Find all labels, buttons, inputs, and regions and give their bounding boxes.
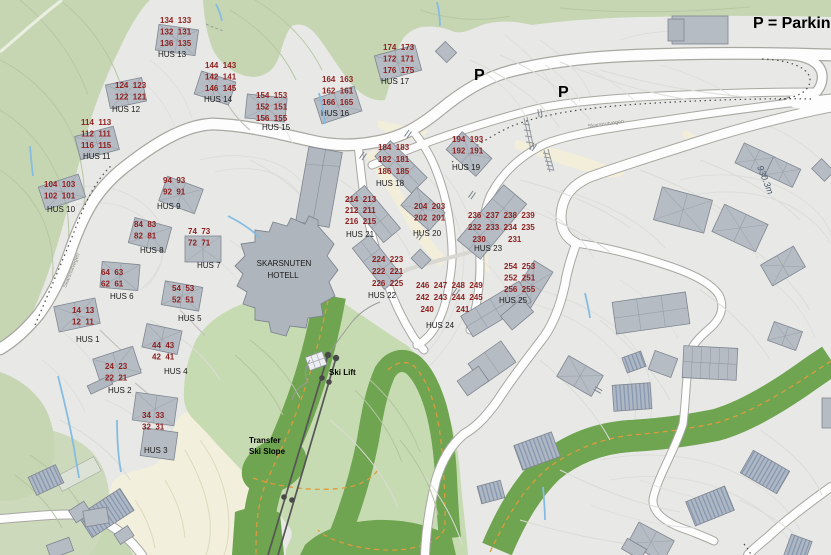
svg-text:HUS 7: HUS 7 <box>197 261 221 270</box>
svg-text:104 103: 104 103 <box>44 180 76 189</box>
svg-text:246 247 248 249: 246 247 248 249 <box>416 281 483 290</box>
svg-text:22 21: 22 21 <box>105 374 128 383</box>
svg-text:62 61: 62 61 <box>101 280 124 289</box>
svg-text:84 83: 84 83 <box>134 220 157 229</box>
svg-text:HUS 21: HUS 21 <box>346 230 375 239</box>
svg-text:HUS 9: HUS 9 <box>157 202 181 211</box>
svg-text:HUS 2: HUS 2 <box>108 386 132 395</box>
svg-text:HUS 5: HUS 5 <box>178 314 202 323</box>
svg-text:64 63: 64 63 <box>101 268 124 277</box>
svg-text:HUS 13: HUS 13 <box>158 50 187 59</box>
svg-text:12 11: 12 11 <box>72 318 94 327</box>
svg-text:112 111: 112 111 <box>81 130 111 139</box>
svg-text:252 251: 252 251 <box>504 274 536 283</box>
svg-text:172 171: 172 171 <box>383 55 415 64</box>
svg-text:156 155: 156 155 <box>256 114 288 123</box>
svg-text:52 51: 52 51 <box>172 296 195 305</box>
svg-text:102 101: 102 101 <box>44 192 76 201</box>
svg-text:116 115: 116 115 <box>81 141 112 150</box>
svg-text:204 203: 204 203 <box>414 202 446 211</box>
svg-text:232 233 234 235: 232 233 234 235 <box>468 223 535 232</box>
svg-text:SKARSNUTEN: SKARSNUTEN <box>257 259 312 268</box>
svg-text:202 201: 202 201 <box>414 214 446 223</box>
svg-text:HUS 22: HUS 22 <box>368 291 397 300</box>
svg-text:HUS 24: HUS 24 <box>426 321 455 330</box>
svg-text:256 255: 256 255 <box>504 285 536 294</box>
svg-text:146 145: 146 145 <box>205 84 237 93</box>
svg-text:74 73: 74 73 <box>188 227 211 236</box>
svg-text:HUS 16: HUS 16 <box>321 109 350 118</box>
svg-text:14 13: 14 13 <box>72 306 95 315</box>
svg-text:214 213: 214 213 <box>345 195 377 204</box>
svg-text:92 91: 92 91 <box>163 188 186 197</box>
svg-text:72 71: 72 71 <box>188 239 211 248</box>
svg-text:HUS 11: HUS 11 <box>83 152 111 161</box>
svg-text:114 113: 114 113 <box>81 118 112 127</box>
svg-text:P = Parking: P = Parking <box>753 15 831 32</box>
svg-text:174 173: 174 173 <box>383 43 415 52</box>
svg-text:226 225: 226 225 <box>372 279 404 288</box>
svg-text:HUS 12: HUS 12 <box>112 105 141 114</box>
svg-text:154 153: 154 153 <box>256 91 288 100</box>
svg-text:P: P <box>558 84 569 101</box>
svg-text:HUS 6: HUS 6 <box>110 292 134 301</box>
svg-text:176 175: 176 175 <box>383 66 415 75</box>
svg-text:152 151: 152 151 <box>256 103 288 112</box>
svg-text:122 121: 122 121 <box>115 93 147 102</box>
svg-text:HUS 25: HUS 25 <box>499 296 528 305</box>
svg-text:HUS 3: HUS 3 <box>144 446 168 455</box>
svg-text:HUS 10: HUS 10 <box>47 205 76 214</box>
svg-text:194 193: 194 193 <box>452 135 484 144</box>
svg-text:94 93: 94 93 <box>163 176 186 185</box>
svg-text:44 43: 44 43 <box>152 341 175 350</box>
svg-text:24 23: 24 23 <box>105 362 128 371</box>
svg-text:HUS 4: HUS 4 <box>164 367 188 376</box>
svg-text:186 185: 186 185 <box>378 167 410 176</box>
svg-text:HUS 1: HUS 1 <box>76 335 100 344</box>
svg-text:124 123: 124 123 <box>115 81 147 90</box>
svg-text:82 81: 82 81 <box>134 232 157 241</box>
svg-text:Ski Lift: Ski Lift <box>329 368 356 377</box>
svg-text:HUS 18: HUS 18 <box>376 179 405 188</box>
svg-text:230 231: 230 231 <box>468 235 522 244</box>
svg-text:212 211: 212 211 <box>345 206 376 215</box>
svg-text:254 253: 254 253 <box>504 262 536 271</box>
svg-text:132 131: 132 131 <box>160 28 192 37</box>
svg-text:216 215: 216 215 <box>345 217 377 226</box>
svg-text:192 191: 192 191 <box>452 147 484 156</box>
svg-text:34 33: 34 33 <box>142 411 165 420</box>
svg-text:HUS 23: HUS 23 <box>474 244 503 253</box>
svg-text:144 143: 144 143 <box>205 61 237 70</box>
svg-text:142 141: 142 141 <box>205 73 237 82</box>
svg-text:32 31: 32 31 <box>142 423 165 432</box>
svg-text:HUS 14: HUS 14 <box>204 95 233 104</box>
svg-text:136 135: 136 135 <box>160 39 192 48</box>
svg-text:HOTELL: HOTELL <box>267 271 299 280</box>
svg-text:HUS 19: HUS 19 <box>452 163 481 172</box>
svg-text:182 181: 182 181 <box>378 155 410 164</box>
svg-text:54 53: 54 53 <box>172 284 195 293</box>
svg-text:HUS 17: HUS 17 <box>381 77 410 86</box>
svg-text:184 183: 184 183 <box>378 143 410 152</box>
svg-text:HUS 15: HUS 15 <box>262 123 291 132</box>
svg-text:P: P <box>474 67 485 84</box>
svg-text:224 223: 224 223 <box>372 255 404 264</box>
svg-text:222 221: 222 221 <box>372 267 404 276</box>
svg-text:236 237 238 239: 236 237 238 239 <box>468 211 535 220</box>
svg-text:Ski Slope: Ski Slope <box>249 447 286 456</box>
svg-text:HUS 8: HUS 8 <box>140 246 164 255</box>
svg-text:166 165: 166 165 <box>322 98 354 107</box>
svg-text:42 41: 42 41 <box>152 353 175 362</box>
svg-text:164 163: 164 163 <box>322 75 354 84</box>
svg-text:242 243 244 245: 242 243 244 245 <box>416 293 483 302</box>
svg-text:162 161: 162 161 <box>322 87 354 96</box>
svg-text:Transfer: Transfer <box>249 436 281 445</box>
svg-text:240 241: 240 241 <box>416 305 470 314</box>
svg-text:134 133: 134 133 <box>160 16 192 25</box>
